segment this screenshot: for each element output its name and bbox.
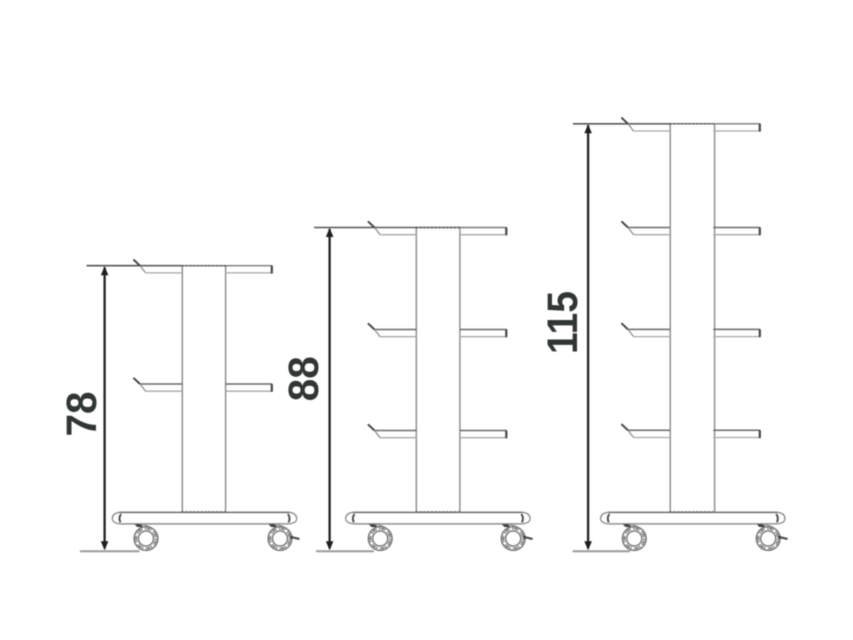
svg-text:88: 88 xyxy=(280,356,328,401)
svg-text:115: 115 xyxy=(539,291,587,354)
svg-text:78: 78 xyxy=(58,392,106,437)
